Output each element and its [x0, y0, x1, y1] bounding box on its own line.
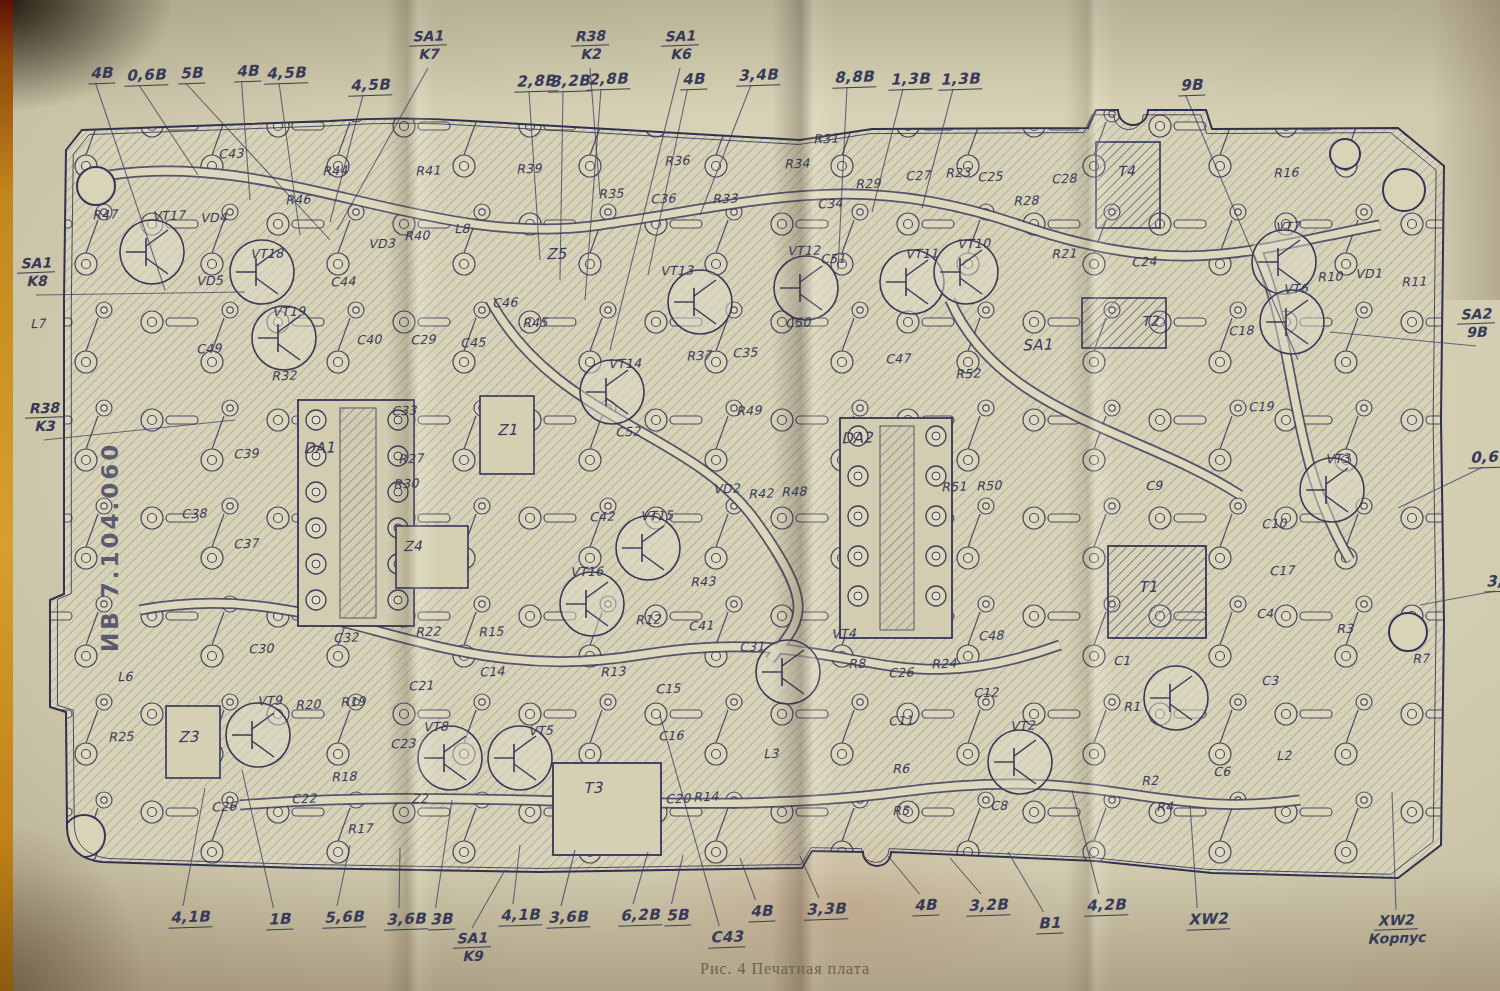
board-part-number: ИВ 7.104.060 — [97, 442, 123, 652]
pcb-artwork — [0, 0, 1500, 991]
scanned-pcb-photo: 4В0,6В5В4В4,5В4,5В2,8В3,2В2,8В4В3,4В8,8В… — [0, 0, 1500, 991]
figure-caption: Рис. 4 Печатная плата — [700, 960, 870, 978]
